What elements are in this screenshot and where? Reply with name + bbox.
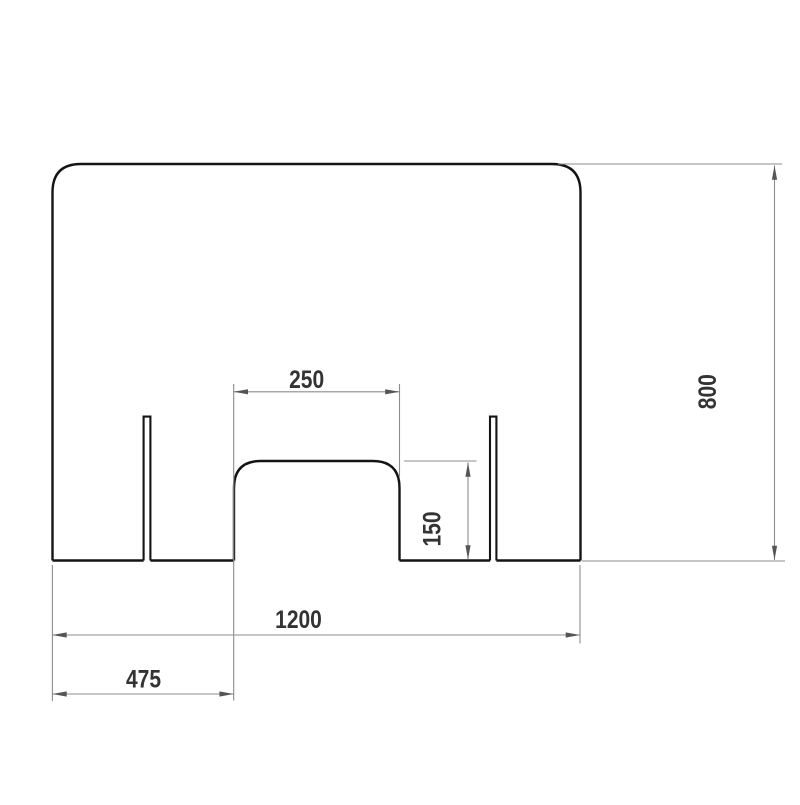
svg-text:1200: 1200	[275, 605, 322, 633]
svg-text:150: 150	[418, 511, 446, 546]
svg-text:800: 800	[693, 374, 721, 409]
svg-text:475: 475	[126, 665, 161, 693]
svg-text:250: 250	[289, 365, 324, 393]
